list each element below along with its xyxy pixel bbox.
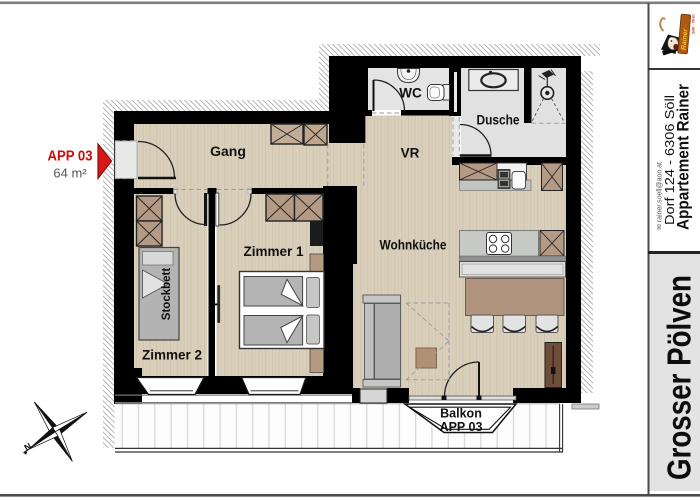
svg-text:Stockbett: Stockbett [161, 268, 173, 321]
svg-text:APP 03: APP 03 [48, 148, 93, 165]
svg-text:64 m²: 64 m² [53, 166, 87, 181]
svg-text:APP 03: APP 03 [440, 420, 483, 434]
svg-text:VR: VR [401, 146, 420, 161]
svg-text:Balkon: Balkon [440, 407, 482, 421]
svg-text:Zimmer 2: Zimmer 2 [142, 348, 202, 363]
svg-text:Grosser Pölven: Grosser Pölven [662, 275, 699, 480]
svg-text:✉ rainer.soell@aon.at: ✉ rainer.soell@aon.at [657, 162, 664, 230]
svg-text:Dorf 124 - 6306 Söll: Dorf 124 - 6306 Söll [663, 95, 677, 225]
svg-text:Gang: Gang [210, 143, 246, 159]
svg-text:Söll - Tirol: Söll - Tirol [691, 15, 696, 34]
svg-text:WC: WC [399, 86, 422, 101]
svg-text:Dusche: Dusche [477, 112, 520, 128]
svg-text:Wohnküche: Wohnküche [380, 237, 447, 253]
svg-text:Zimmer 1: Zimmer 1 [243, 244, 304, 259]
